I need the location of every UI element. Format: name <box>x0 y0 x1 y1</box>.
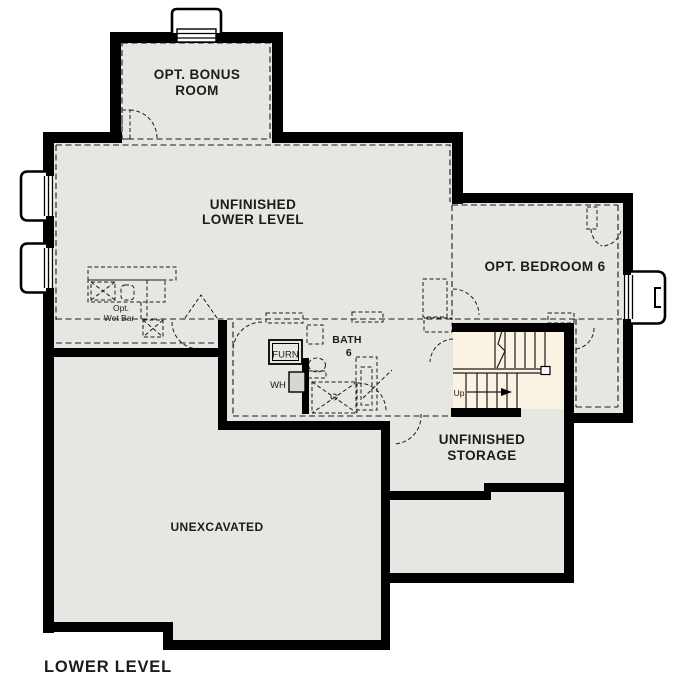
unexcavated-label: UNEXCAVATED <box>170 520 263 534</box>
wall-segment <box>381 421 390 650</box>
bath-label-line2: 6 <box>346 347 352 359</box>
wall-segment <box>381 573 573 583</box>
furnace-label: FURN <box>272 350 299 361</box>
window-well-icon <box>21 172 46 221</box>
storage-label-line2: STORAGE <box>447 448 516 463</box>
water-heater-icon <box>289 372 305 392</box>
main-room-label-line2: LOWER LEVEL <box>202 212 304 227</box>
bedroom-label: OPT. BEDROOM 6 <box>484 259 605 274</box>
wet-bar-label-line1: Opt. <box>113 303 129 313</box>
stairs-up-label: Up <box>454 388 465 398</box>
stair-newel <box>541 367 550 375</box>
floor-plan-drawing: Opt. Wet Bar <box>0 0 687 687</box>
wall-segment <box>484 483 574 492</box>
bonus-room-label-line2: ROOM <box>175 83 219 98</box>
wall-segment <box>272 32 283 136</box>
wall-segment <box>452 323 573 332</box>
water-heater-label: WH <box>270 380 286 391</box>
wall-segment <box>218 320 227 430</box>
wet-bar-label-line2: Wet Bar <box>104 313 135 323</box>
wall-segment <box>218 421 390 430</box>
window-well-icon <box>21 244 46 293</box>
floor-plan-page: Opt. Wet Bar <box>0 0 687 687</box>
wall-segment <box>385 491 491 500</box>
wall-segment <box>451 408 521 417</box>
wall-segment <box>110 32 121 136</box>
wall-segment <box>43 622 173 632</box>
wall-segment <box>43 132 122 143</box>
wall-segment <box>43 348 227 357</box>
wall-segment <box>564 323 574 583</box>
wall-segment <box>452 193 633 203</box>
storage-label-line1: UNFINISHED <box>439 432 526 447</box>
plan-title: LOWER LEVEL <box>44 658 172 676</box>
bath-label-line1: BATH <box>332 334 362 346</box>
wall-segment <box>163 640 390 650</box>
wall-segment <box>272 132 463 143</box>
bonus-room-label-line1: OPT. BONUS <box>154 67 241 82</box>
chimney-flue <box>177 29 216 42</box>
main-room-label-line1: UNFINISHED <box>210 197 297 212</box>
window-well-icon <box>631 272 665 324</box>
wall-segment <box>564 413 633 423</box>
wall-segment <box>484 483 491 500</box>
